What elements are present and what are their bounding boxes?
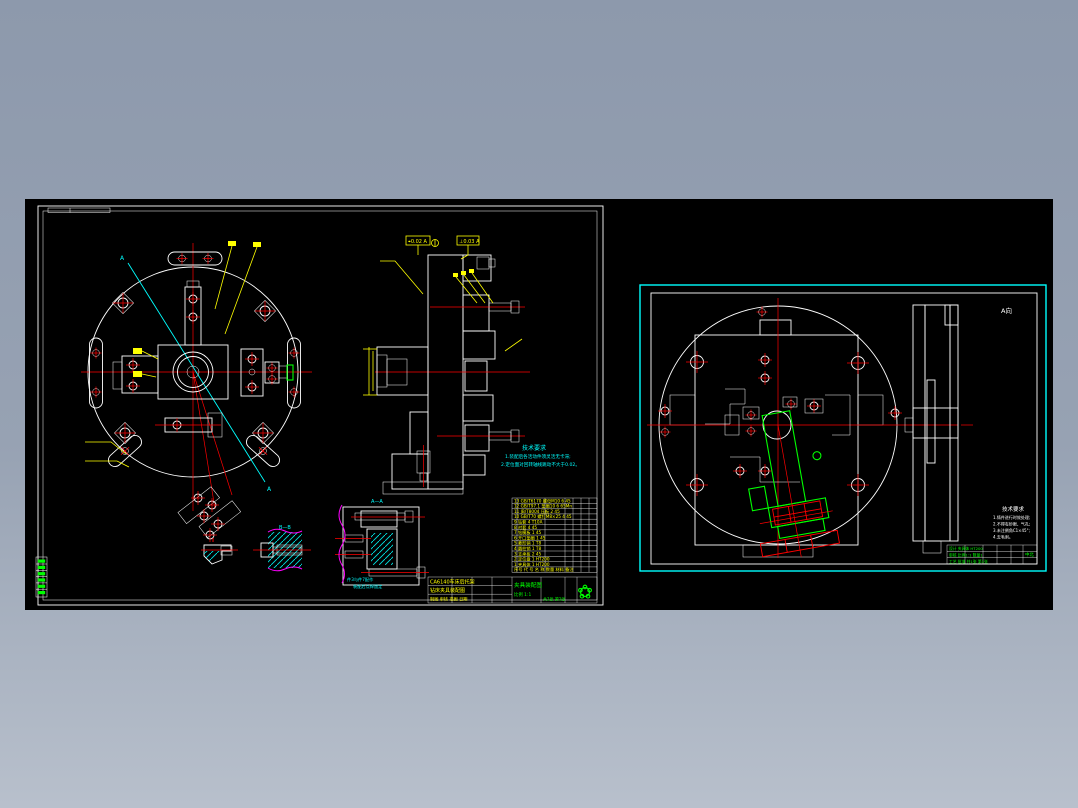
section-leaders xyxy=(380,261,522,351)
cad-drawing-canvas[interactable]: A A xyxy=(25,199,1053,610)
notes-line: 2.定位面对回转轴线跳动不大于0.02。 xyxy=(501,461,580,468)
notes-line: 3.未注倒角C1×45°; xyxy=(993,527,1030,533)
notes-line: 1.铸件进行时效处理; xyxy=(993,514,1030,520)
bom-row: 序号 代 号 名 称 数量 材料 备注 xyxy=(514,566,574,573)
detail-view-small: Ⅱ xyxy=(201,538,238,564)
title-stamp: 中北 xyxy=(1025,551,1034,558)
right-sheet-inner-border xyxy=(651,293,1037,564)
plan-view-base-plate xyxy=(647,298,958,564)
title-sheet: 共1张 第1张 xyxy=(543,596,565,602)
bom-table: 13 GB/T6170 螺母M10 6 4512 GB/T97.1 垫圈10 6… xyxy=(512,497,597,573)
tolerance-frames: ⌖0.02 A ⊥0.03 A xyxy=(406,236,480,259)
left-sheet-corner-box xyxy=(48,208,110,213)
title-row: 工艺 批准 共1张 第1张 xyxy=(949,559,988,564)
highlighted-lever-assembly xyxy=(737,406,841,564)
tolerance-label-right: ⊥0.03 A xyxy=(459,239,480,245)
bolt-hole xyxy=(112,292,133,313)
title-name: 夹具装配图 xyxy=(514,581,542,589)
detail-note: 装配后点焊固定 xyxy=(353,583,382,590)
title-row: 审核 比例1:1 数量1 xyxy=(949,553,983,558)
title-row: 设计 夹具体 HT200 xyxy=(949,546,983,551)
bolt-hole xyxy=(114,422,135,443)
detail-view-mid: B—B xyxy=(253,525,311,571)
title-row2: 钻床夹具装配图 xyxy=(430,587,465,594)
approval-stamp-icon xyxy=(579,585,592,598)
center-hub xyxy=(113,281,293,437)
notes-line: 2.不得有砂眼、气孔; xyxy=(993,521,1030,527)
technical-notes-right: 技术要求 1.铸件进行时效处理; 2.不得有砂眼、气孔; 3.未注倒角C1×45… xyxy=(993,505,1030,540)
plan-view-fixture-plate: A A xyxy=(81,241,312,543)
section-label-bottom: A xyxy=(267,486,272,493)
notes-title: 技术要求 xyxy=(1002,505,1025,513)
cad-vector-layer: A A xyxy=(25,199,1053,610)
rim-slot-top xyxy=(168,252,222,265)
section-cut-line xyxy=(128,263,265,482)
section-label-top: A xyxy=(120,255,125,262)
title-block-left-sheet: CA6140车床后托架 钻床夹具装配图 制图 审核 描图 日期 夹具装配图 比例… xyxy=(428,577,597,603)
detail-label-right: A—A xyxy=(371,499,383,505)
title-scale: 比例 1:1 xyxy=(514,591,531,598)
left-sheet: A A xyxy=(36,206,603,605)
view-direction-label: A向 xyxy=(1001,306,1012,315)
clamp-cluster xyxy=(178,482,241,543)
detail-note: 件3与件7配作 xyxy=(347,576,374,583)
bom-rows: 13 GB/T6170 螺母M10 6 4512 GB/T97.1 垫圈10 6… xyxy=(512,497,597,573)
title-row3: 制图 审核 描图 日期 xyxy=(430,596,468,603)
rim-slot-right xyxy=(288,338,301,408)
notes-line: 1.装配后各活动件须灵活无卡滞; xyxy=(505,453,571,460)
detail-label-small: Ⅱ xyxy=(212,538,214,544)
right-sheet: A向 技术要求 1.铸件进行时效处理; 2.不得有砂眼、气孔; 3.未注倒角C1… xyxy=(640,285,1046,571)
tolerance-label-left: ⌖0.02 A xyxy=(408,239,428,245)
notes-line: 4.去毛刺。 xyxy=(993,534,1013,540)
detail-view-right: A—A 件3与件7配作 装配后 xyxy=(335,499,429,590)
desktop-background: A A xyxy=(0,0,1078,808)
bolt-hole xyxy=(252,422,273,443)
side-section-view xyxy=(905,305,973,553)
right-sheet-cyan-border xyxy=(640,285,1046,571)
technical-notes-left: 技术要求 1.装配后各活动件须灵活无卡滞; 2.定位面对回转轴线跳动不大于0.0… xyxy=(501,444,580,468)
title-row1: CA6140车床后托架 xyxy=(430,579,475,586)
title-block-right-sheet: 设计 夹具体 HT200 审核 比例1:1 数量1 工艺 批准 共1张 第1张 … xyxy=(947,545,1037,564)
notes-title: 技术要求 xyxy=(522,444,546,452)
